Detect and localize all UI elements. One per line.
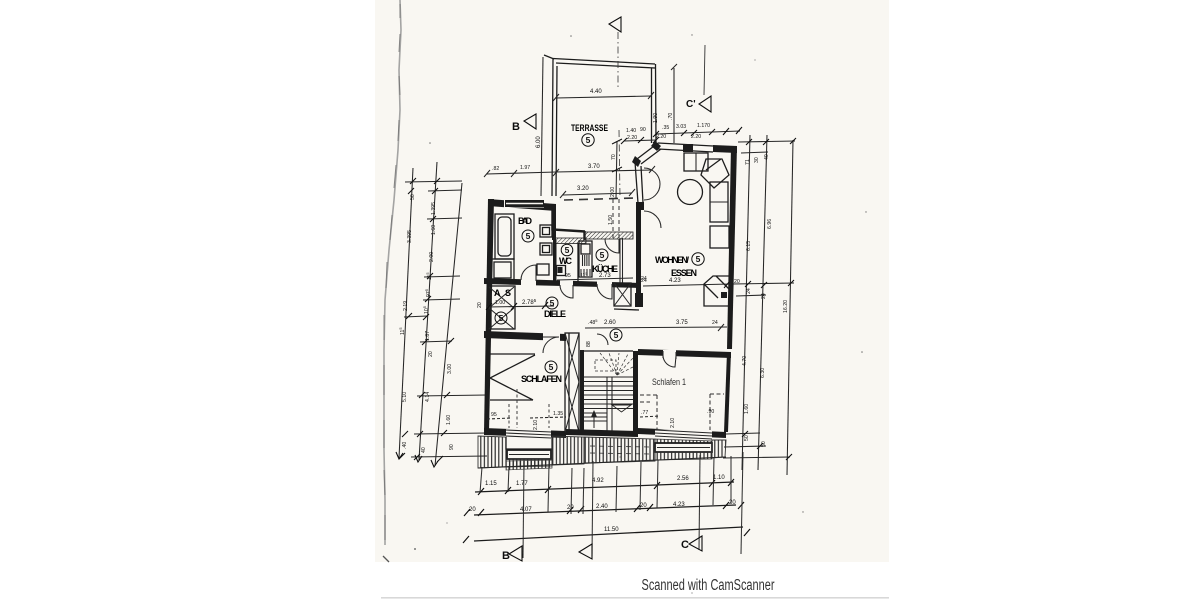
svg-text:1.50: 1.50	[608, 215, 614, 225]
svg-text:2.20: 2.20	[691, 134, 701, 140]
svg-text:5: 5	[586, 135, 591, 145]
svg-text:.90: .90	[707, 409, 714, 415]
svg-text:Schlafen 1: Schlafen 1	[652, 377, 686, 388]
svg-text:.82: .82	[492, 166, 499, 172]
svg-text:4.07: 4.07	[520, 507, 532, 513]
svg-text:6.00: 6.00	[536, 136, 542, 148]
svg-text:1.87: 1.87	[425, 331, 431, 341]
svg-text:1.97: 1.97	[520, 165, 530, 171]
svg-text:WC: WC	[559, 256, 573, 266]
svg-text:50: 50	[410, 194, 416, 200]
svg-text:2.10: 2.10	[670, 418, 676, 428]
svg-text:2.40: 2.40	[596, 504, 608, 510]
svg-text:1.60: 1.60	[744, 404, 750, 414]
svg-text:3.75: 3.75	[676, 320, 688, 326]
svg-text:5: 5	[499, 313, 504, 323]
svg-text:3.395: 3.395	[407, 230, 413, 243]
svg-text:5: 5	[565, 245, 570, 255]
svg-text:B: B	[512, 121, 520, 133]
svg-text:4.40: 4.40	[590, 89, 602, 95]
svg-text:20: 20	[734, 279, 740, 285]
svg-text:.77: .77	[641, 410, 648, 416]
svg-text:24: 24	[712, 320, 718, 326]
svg-text:WOHNEN /: WOHNEN /	[655, 255, 689, 265]
svg-text:4.23: 4.23	[669, 278, 681, 284]
svg-text:40: 40	[421, 447, 427, 453]
svg-text:6.96: 6.96	[767, 219, 773, 229]
svg-text:6.30: 6.30	[760, 368, 766, 378]
svg-text:.35: .35	[662, 125, 669, 131]
svg-text:1.170: 1.170	[697, 123, 710, 129]
svg-text:2.19: 2.19	[403, 301, 409, 311]
svg-text:.70: .70	[668, 113, 674, 120]
svg-text:50: 50	[744, 435, 750, 441]
svg-text:90: 90	[640, 127, 646, 133]
svg-text:90: 90	[449, 444, 455, 450]
svg-text:2.10: 2.10	[533, 420, 539, 430]
svg-text:1.00: 1.00	[495, 300, 505, 306]
svg-text:20: 20	[640, 503, 647, 509]
svg-text:4.14: 4.14	[425, 392, 431, 402]
svg-text:.40: .40	[402, 442, 408, 449]
svg-text:2.20: 2.20	[627, 135, 637, 141]
svg-text:2.73: 2.73	[599, 273, 611, 279]
svg-text:24: 24	[746, 288, 752, 294]
svg-text:70: 70	[611, 154, 617, 160]
svg-text:24: 24	[641, 278, 647, 284]
svg-text:4.23: 4.23	[673, 502, 685, 508]
svg-text:1.60: 1.60	[446, 415, 452, 425]
svg-text:24: 24	[761, 293, 767, 299]
svg-text:B: B	[502, 550, 510, 562]
svg-text:DIELE: DIELE	[544, 309, 566, 319]
svg-text:1.10: 1.10	[713, 475, 725, 481]
svg-text:5: 5	[526, 231, 531, 241]
svg-text:4.70: 4.70	[742, 356, 748, 366]
svg-text:C': C'	[686, 99, 696, 110]
svg-text:71: 71	[745, 159, 751, 165]
svg-text:2.20: 2.20	[656, 134, 666, 140]
svg-text:BAD: BAD	[518, 216, 533, 226]
svg-text:1.35: 1.35	[553, 411, 563, 417]
svg-text:2.00: 2.00	[610, 187, 616, 197]
svg-text:5: 5	[549, 362, 554, 372]
svg-text:ESSEN: ESSEN	[671, 268, 697, 278]
svg-text:3.20: 3.20	[577, 186, 589, 192]
svg-text:5: 5	[696, 254, 701, 264]
svg-text:20: 20	[477, 302, 483, 308]
svg-text:6.15: 6.15	[746, 241, 752, 251]
svg-text:C: C	[681, 539, 689, 551]
svg-text:1.40: 1.40	[626, 128, 636, 134]
svg-text:5: 5	[600, 250, 605, 260]
svg-text:20: 20	[428, 351, 434, 357]
svg-text:5: 5	[614, 330, 619, 340]
svg-text:95: 95	[565, 273, 571, 279]
svg-text:20: 20	[469, 507, 476, 513]
svg-text:2.00: 2.00	[429, 252, 435, 262]
svg-text:2.60: 2.60	[604, 320, 616, 326]
svg-text:5.10: 5.10	[402, 392, 408, 402]
svg-text:1.60: 1.60	[431, 225, 437, 235]
svg-text:30: 30	[754, 157, 760, 163]
svg-text:95: 95	[491, 412, 497, 418]
svg-text:TERRASSE: TERRASSE	[571, 123, 608, 133]
svg-text:1.15: 1.15	[485, 481, 497, 487]
svg-text:Scanned with CamScanner: Scanned with CamScanner	[642, 577, 775, 594]
svg-text:3.70: 3.70	[588, 164, 600, 170]
svg-text:40: 40	[764, 154, 770, 160]
svg-text:20: 20	[729, 500, 736, 506]
svg-text:11.50: 11.50	[604, 527, 619, 533]
svg-text:50: 50	[761, 441, 767, 447]
svg-text:1.90: 1.90	[653, 113, 659, 123]
svg-text:3.00: 3.00	[447, 364, 453, 374]
svg-text:2.56: 2.56	[677, 476, 689, 482]
svg-text:SCHLAFEN: SCHLAFEN	[521, 374, 562, 384]
svg-text:1.77: 1.77	[516, 481, 528, 487]
svg-text:16.20: 16.20	[783, 300, 789, 313]
svg-text:3.03: 3.03	[676, 124, 686, 130]
svg-text:88: 88	[586, 341, 592, 347]
svg-text:4.92: 4.92	[592, 478, 604, 484]
svg-text:1.395: 1.395	[431, 202, 437, 215]
